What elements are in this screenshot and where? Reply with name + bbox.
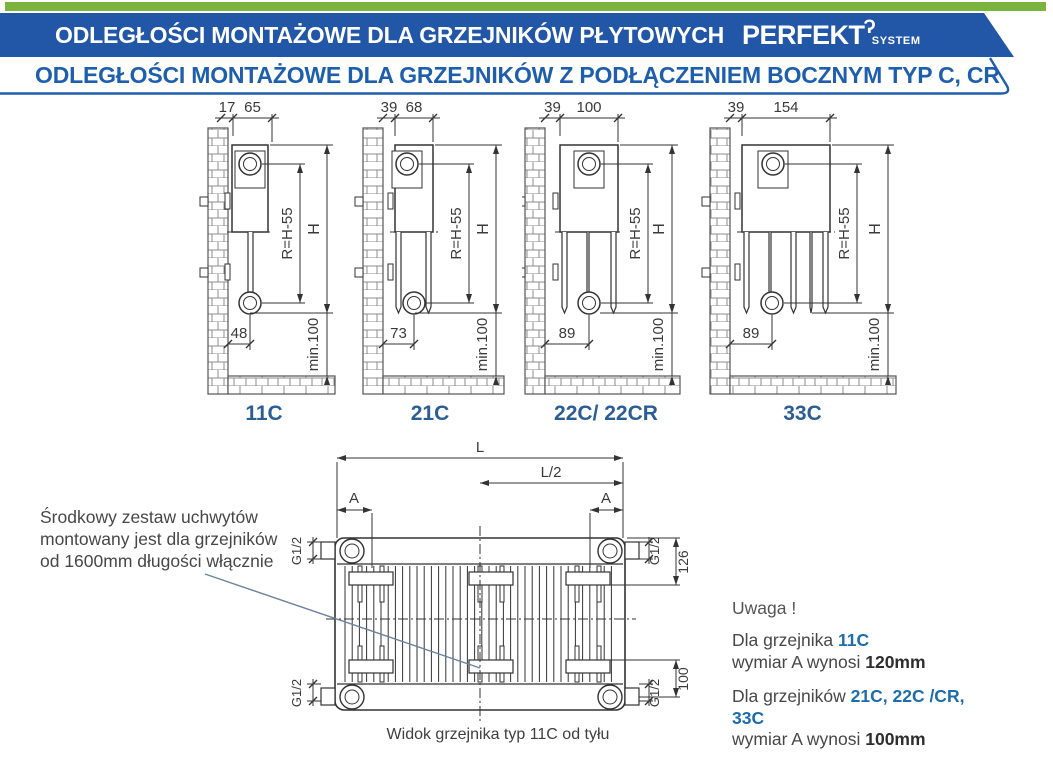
dim-label: 39	[728, 99, 745, 116]
dim-label: R=H-55	[836, 207, 853, 259]
note-11c-types: Dla grzejnika 11C	[732, 630, 992, 652]
brand-logo: PERFEKTɁSYSTEM	[742, 13, 921, 57]
bracket-note-line: montowany jest dla grzejników	[40, 528, 310, 550]
subtitle: ODLEGŁOŚCI MONTAŻOWE DLA GRZEJNIKÓW Z PO…	[35, 57, 1000, 94]
dim-label: H	[306, 223, 323, 235]
dim-label: G1/2	[647, 537, 662, 565]
dim-label: 89	[559, 325, 576, 342]
sub-header: ODLEGŁOŚCI MONTAŻOWE DLA GRZEJNIKÓW Z PO…	[0, 57, 1053, 95]
page: ODLEGŁOŚCI MONTAŻOWE DLA GRZEJNIKÓW PŁYT…	[0, 0, 1053, 769]
dim-label: L/2	[541, 464, 562, 481]
dim-label: min.100	[866, 318, 883, 371]
dim-label: H	[475, 223, 492, 235]
dim-label: 39	[381, 99, 398, 116]
dim-label: G1/2	[289, 679, 304, 707]
dim-label: min.100	[474, 318, 491, 371]
dim-label: 154	[773, 99, 798, 116]
diagram-side-21c: 396873R=H-55Hmin.100	[350, 98, 510, 396]
diagram-side-22c: 3910089R=H-55Hmin.100	[522, 98, 690, 396]
warning-title: Uwaga !	[732, 598, 992, 620]
dim-label: H	[867, 223, 884, 235]
dim-label: R=H-55	[627, 207, 644, 259]
note-11c-value: wymiar A wynosi 120mm	[732, 652, 992, 674]
dim-label: 126	[675, 550, 691, 574]
warning-note: Uwaga ! Dla grzejnika 11C wymiar A wynos…	[732, 598, 992, 751]
dim-label: min.100	[305, 318, 322, 371]
type-label-21c: 21C	[350, 402, 510, 426]
brand-sub: SYSTEM	[872, 35, 921, 47]
dim-label: 100	[576, 99, 601, 116]
dim-label: G1/2	[647, 679, 662, 707]
dim-label: 39	[544, 99, 561, 116]
dim-label: 68	[406, 99, 423, 116]
diagram-side-11c: 176548R=H-55Hmin.100	[185, 98, 343, 396]
rear-view-caption: Widok grzejnika typ 11C od tyłu	[288, 726, 708, 744]
bracket-note: Środkowy zestaw uchwytów montowany jest …	[40, 506, 310, 572]
dim-label: 100	[675, 667, 691, 691]
dim-label: 65	[244, 99, 261, 116]
bracket-note-line: Środkowy zestaw uchwytów	[40, 506, 310, 528]
note-other-types: Dla grzejników 21C, 22C /CR, 33C	[732, 686, 992, 730]
diagram-side-33c: 3915489R=H-55Hmin.100	[700, 98, 905, 396]
brand-name: PERFEKT	[742, 20, 865, 51]
type-label-33c: 33C	[700, 402, 905, 426]
dim-label: min.100	[650, 318, 667, 371]
dim-label: 48	[231, 325, 248, 342]
bracket-note-line: od 1600mm długości włącznie	[40, 550, 310, 572]
dim-label: 17	[219, 99, 236, 116]
dim-label: 73	[390, 325, 407, 342]
note-other-value: wymiar A wynosi 100mm	[732, 729, 992, 751]
dim-label: H	[651, 223, 668, 235]
type-label-22c: 22C/ 22CR	[522, 402, 690, 426]
dim-label: 89	[743, 325, 760, 342]
main-header: ODLEGŁOŚCI MONTAŻOWE DLA GRZEJNIKÓW PŁYT…	[0, 13, 1014, 57]
top-accent-bar	[5, 2, 1046, 11]
type-label-11c: 11C	[185, 402, 343, 426]
dim-label: R=H-55	[279, 207, 296, 259]
dim-label: R=H-55	[448, 207, 465, 259]
page-title: ODLEGŁOŚCI MONTAŻOWE DLA GRZEJNIKÓW PŁYT…	[55, 13, 724, 57]
dim-label: A	[601, 490, 611, 507]
dim-label: A	[349, 490, 359, 507]
leader-line	[200, 562, 492, 677]
dim-label: L	[476, 439, 484, 456]
